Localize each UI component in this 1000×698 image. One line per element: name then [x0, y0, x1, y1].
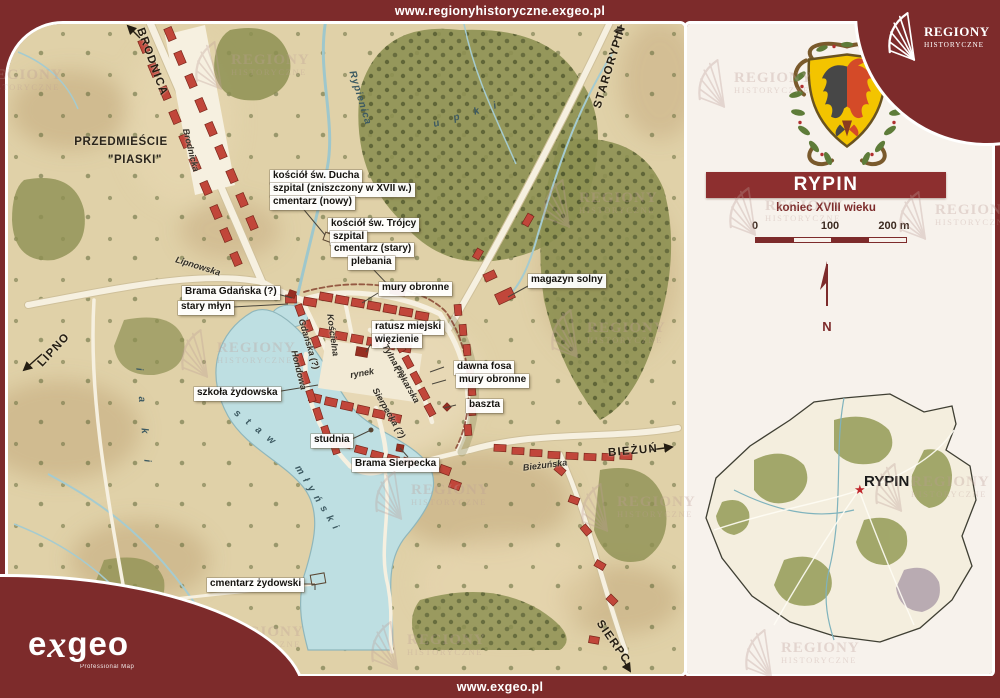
north-indicator: N: [797, 258, 857, 346]
exgeo-wordmark: exgeo: [28, 624, 134, 662]
region-minimap: ★ RYPIN: [694, 390, 986, 648]
historic-town-map: kościół św. Duchaszpital (zniszczony w X…: [8, 24, 684, 674]
map-period: koniec XVIII wieku: [706, 202, 946, 214]
bottom-url-bar: www.exgeo.pl: [0, 676, 1000, 698]
poster: www.regionyhistoryczne.exgeo.pl: [0, 0, 1000, 698]
scale-tick-0: 0: [752, 220, 758, 232]
regiony-historyczne-logo: REGIONY HISTORYCZNE: [884, 6, 994, 66]
wing-icon: [884, 11, 920, 61]
scale-bar: 0 100 200 m: [687, 220, 992, 260]
town-title: RYPIN: [794, 174, 859, 196]
exgeo-logo: exgeo Professional Map: [28, 624, 134, 670]
brand-line2: HISTORYCZNE: [924, 40, 990, 49]
top-url: www.regionyhistoryczne.exgeo.pl: [395, 4, 605, 18]
scale-tick-200: 200 m: [878, 220, 909, 232]
scale-segments: [755, 237, 907, 243]
scale-tick-100: 100: [821, 220, 839, 232]
bottom-url: www.exgeo.pl: [457, 680, 544, 694]
top-url-bar: www.regionyhistoryczne.exgeo.pl: [0, 0, 1000, 21]
north-label: N: [797, 319, 857, 334]
leader-lines: [8, 24, 684, 674]
minimap-town-label: RYPIN: [864, 473, 909, 490]
exgeo-x-flourish: x: [47, 626, 67, 664]
title-banner: RYPIN: [706, 172, 946, 198]
exgeo-tagline: Professional Map: [80, 664, 134, 670]
north-arrow-icon: [815, 258, 839, 318]
brand-line1: REGIONY: [924, 24, 990, 40]
